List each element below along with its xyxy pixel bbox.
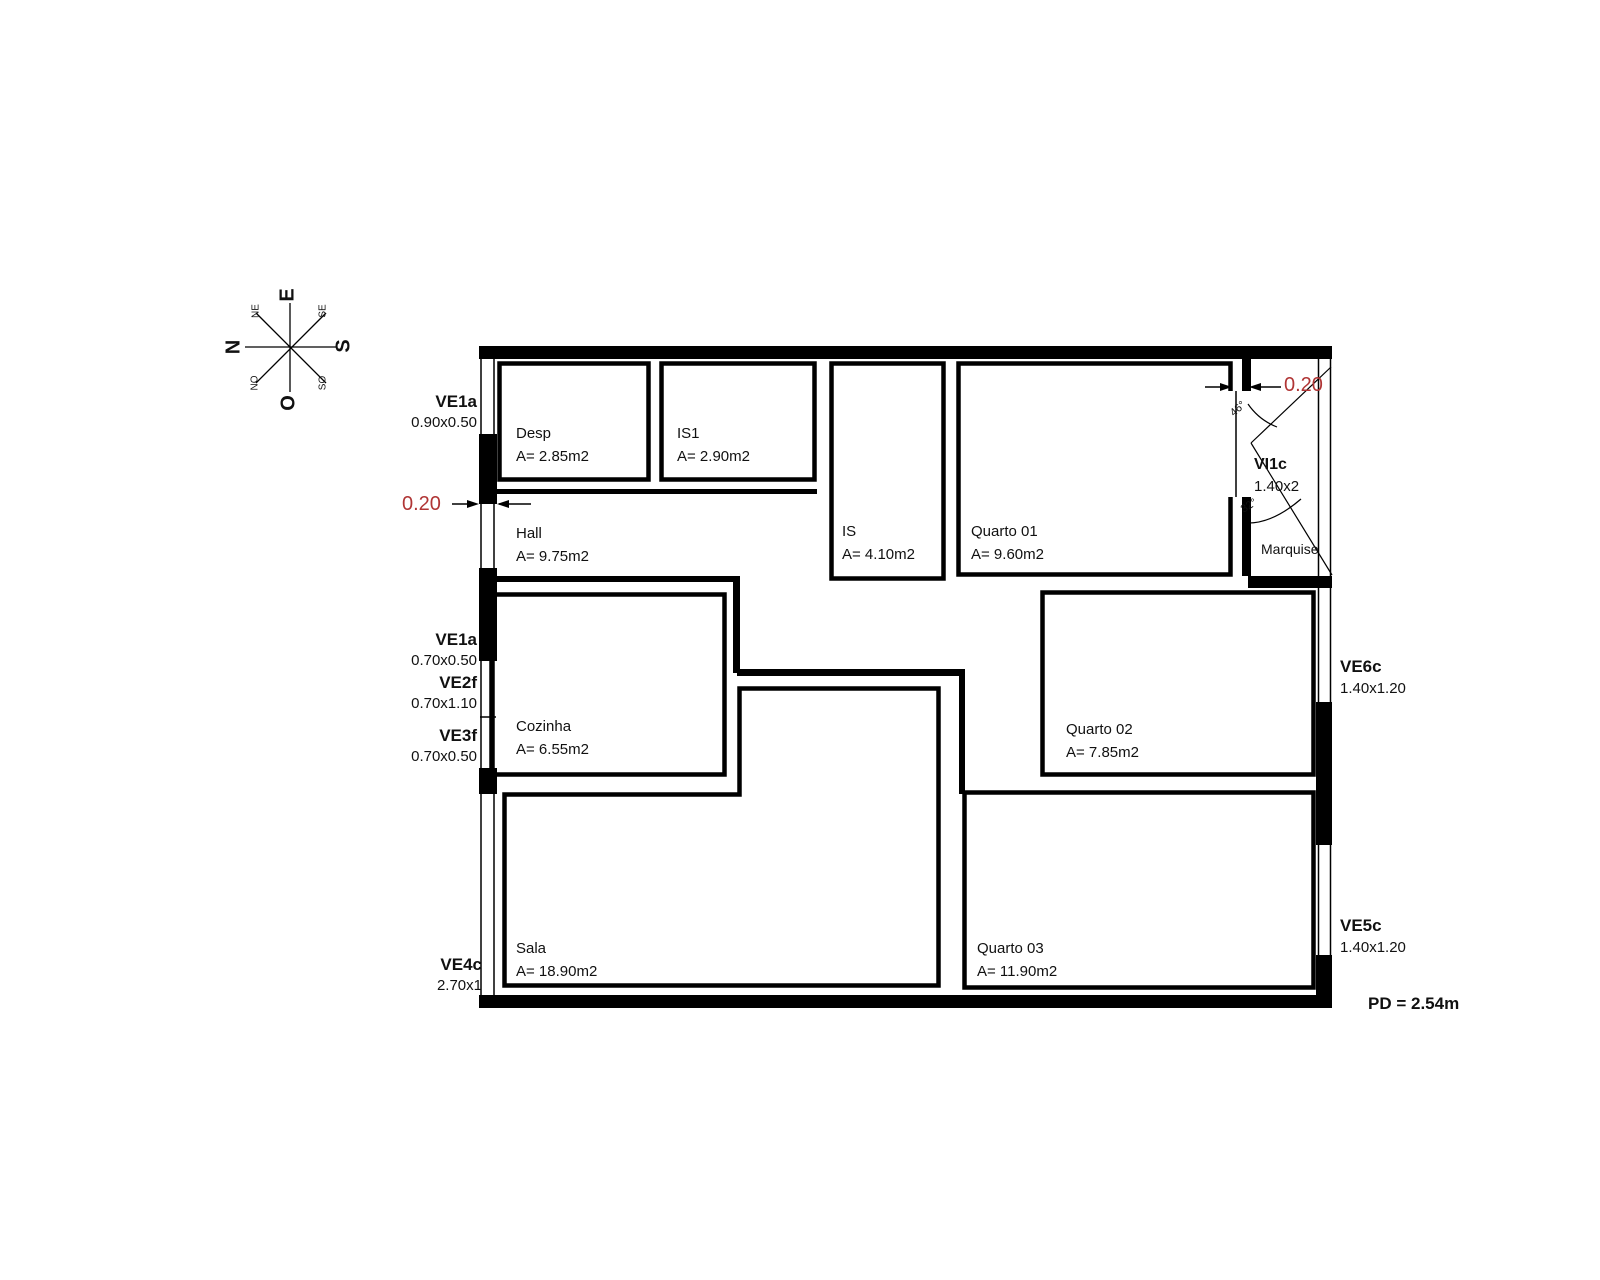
- ve4c-size: 2.70x1: [437, 978, 482, 993]
- ve3f-code: VE3f: [411, 727, 477, 744]
- exterior-walls: [479, 346, 1332, 1008]
- room-hall-name: Hall: [516, 526, 589, 541]
- dim-wall-left: 0.20: [402, 494, 441, 514]
- room-quarto02-area: A= 7.85m2: [1066, 745, 1139, 760]
- room-desp-area: A= 2.85m2: [516, 449, 589, 464]
- ve4c-code: VE4c: [437, 956, 482, 973]
- opening-label-vi1c: VI1c 1.40x2: [1254, 457, 1299, 494]
- compass-west-label: O: [278, 395, 301, 411]
- hall-bottom-wall: [490, 576, 738, 582]
- room-label-is: IS A= 4.10m2: [842, 524, 915, 562]
- sala-quartos-wall: [959, 669, 965, 794]
- ve1a-mid-code: VE1a: [411, 631, 477, 648]
- room-is1-name: IS1: [677, 426, 750, 441]
- room-label-sala: Sala A= 18.90m2: [516, 941, 597, 979]
- ve3f-size: 0.70x0.50: [411, 749, 477, 764]
- compass-north-label: N: [223, 340, 246, 354]
- room-hall-area: A= 9.75m2: [516, 549, 589, 564]
- compass-east-label: E: [277, 288, 300, 301]
- dim-left-arrowhead-b: [497, 500, 509, 508]
- wall-right-mid: [1316, 702, 1332, 845]
- room-desp-name: Desp: [516, 426, 589, 441]
- room-cozinha-name: Cozinha: [516, 719, 589, 734]
- wall-left-seg3: [479, 768, 497, 794]
- opening-label-ve1a-mid: VE1a 0.70x0.50: [411, 631, 477, 668]
- ve1a-mid-size: 0.70x0.50: [411, 653, 477, 668]
- corridor-wall-vertical: [733, 576, 740, 673]
- vi1c-size: 1.40x2: [1254, 479, 1299, 494]
- room-sala-name: Sala: [516, 941, 597, 956]
- dim-left-arrowhead-a: [467, 500, 479, 508]
- room-quarto02-name: Quarto 02: [1066, 722, 1139, 737]
- ve1a-top-size: 0.90x0.50: [411, 415, 477, 430]
- ve6c-code: VE6c: [1340, 658, 1406, 675]
- room-is-area: A= 4.10m2: [842, 547, 915, 562]
- opening-label-ve1a-top: VE1a 0.90x0.50: [411, 393, 477, 430]
- sala-corridor-wall: [737, 669, 965, 676]
- wall-top: [479, 346, 1332, 359]
- room-label-cozinha: Cozinha A= 6.55m2: [516, 719, 589, 757]
- compass-ne-label: NE: [251, 304, 262, 318]
- room-is-name: IS: [842, 524, 915, 539]
- ve2f-code: VE2f: [411, 674, 477, 691]
- vi1c-jamb-top: [1242, 359, 1251, 391]
- ve6c-size: 1.40x1.20: [1340, 681, 1406, 696]
- compass-south-label: S: [333, 339, 356, 352]
- room-quarto01-name: Quarto 01: [971, 524, 1044, 539]
- room-quarto01-area: A= 9.60m2: [971, 547, 1044, 562]
- room-label-quarto02: Quarto 02 A= 7.85m2: [1066, 722, 1139, 760]
- opening-label-ve3f: VE3f 0.70x0.50: [411, 727, 477, 764]
- wall-right-corner: [1316, 955, 1332, 1008]
- floor-plan-page: E O N S NE SE NO SO Desp A= 2.85m2 IS1 A…: [0, 0, 1600, 1280]
- room-label-marquise: Marquise: [1261, 541, 1319, 557]
- ve1a-top-code: VE1a: [411, 393, 477, 410]
- vi1c-code: VI1c: [1254, 457, 1299, 473]
- compass-so-label: SO: [318, 376, 329, 390]
- ve5c-size: 1.40x1.20: [1340, 940, 1406, 955]
- ve5c-code: VE5c: [1340, 917, 1406, 934]
- compass-se-label: SE: [318, 304, 329, 317]
- ve2f-size: 0.70x1.10: [411, 696, 477, 711]
- wall-left-seg1: [479, 434, 497, 504]
- room-cozinha-area: A= 6.55m2: [516, 742, 589, 757]
- room-quarto03-name: Quarto 03: [977, 941, 1057, 956]
- room-label-is1: IS1 A= 2.90m2: [677, 426, 750, 464]
- hall-top-wall: [497, 489, 817, 494]
- marquise-bottom-wall: [1248, 576, 1332, 588]
- room-label-hall: Hall A= 9.75m2: [516, 526, 589, 564]
- wall-bottom: [479, 995, 1332, 1008]
- room-label-quarto03: Quarto 03 A= 11.90m2: [977, 941, 1057, 979]
- room-label-quarto01: Quarto 01 A= 9.60m2: [971, 524, 1044, 562]
- room-is1-area: A= 2.90m2: [677, 449, 750, 464]
- opening-label-ve4c: VE4c 2.70x1: [437, 956, 482, 993]
- room-label-desp: Desp A= 2.85m2: [516, 426, 589, 464]
- windows: [480, 359, 1331, 995]
- opening-label-ve6c: VE6c 1.40x1.20: [1340, 658, 1406, 696]
- ceiling-height-note: PD = 2.54m: [1368, 994, 1459, 1014]
- room-quarto03-area: A= 11.90m2: [977, 964, 1057, 979]
- opening-label-ve5c: VE5c 1.40x1.20: [1340, 917, 1406, 955]
- room-sala-area: A= 18.90m2: [516, 964, 597, 979]
- compass-no-label: NO: [250, 376, 261, 391]
- floor-plan-drawing: [0, 0, 1600, 1280]
- dim-wall-right: 0.20: [1284, 375, 1323, 395]
- opening-label-ve2f: VE2f 0.70x1.10: [411, 674, 477, 711]
